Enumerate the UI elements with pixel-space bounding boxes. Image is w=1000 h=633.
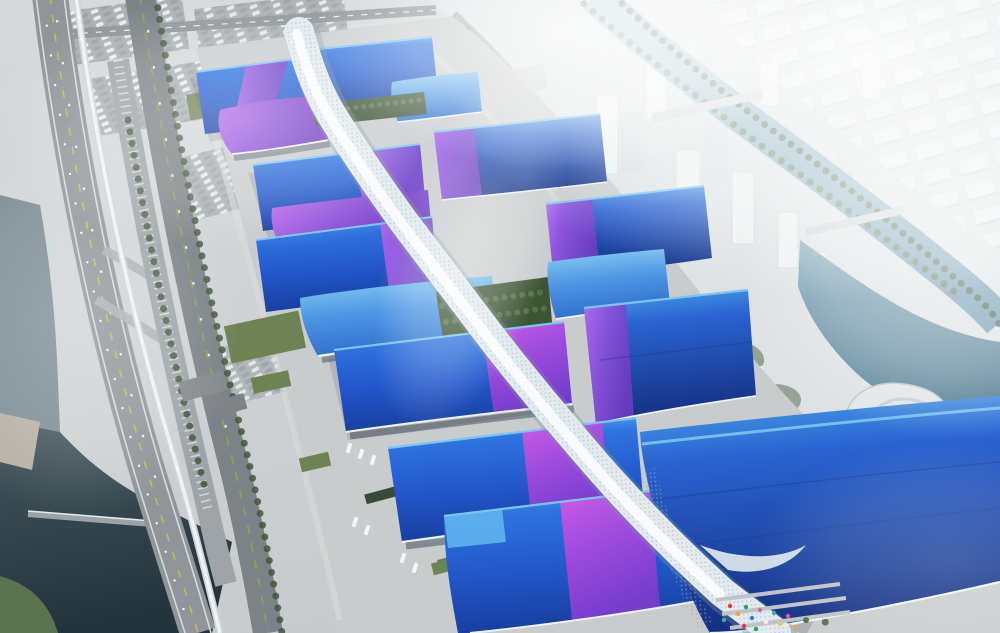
aerial-rendering [0,0,1000,633]
person-dot [758,608,762,612]
person-dot [778,622,782,626]
tower [732,172,754,244]
person-dot [744,605,748,609]
person-dot [736,612,740,616]
person-dot [742,624,746,628]
tower [760,62,778,106]
person-dot [750,616,754,620]
purple-band [434,128,482,200]
tower [622,112,640,172]
tower [862,64,880,100]
person-dot [793,625,797,629]
person-dot [722,618,726,622]
palm-tree [803,617,809,623]
tower [778,212,798,268]
rendering-canvas [0,0,1000,633]
person-dot [786,614,790,618]
person-dot [728,604,732,608]
person-dot [754,627,758,631]
tower [706,122,726,182]
person-dot [764,620,768,624]
person-dot [772,611,776,615]
